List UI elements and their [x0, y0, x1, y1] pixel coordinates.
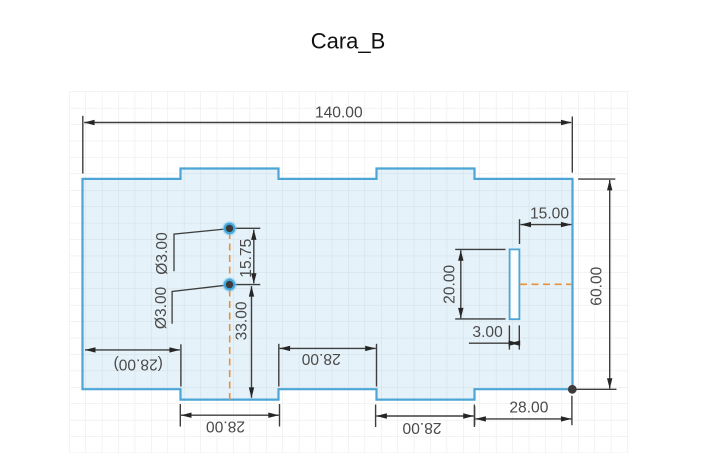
svg-text:28.00: 28.00 [206, 417, 245, 434]
svg-text:20.00: 20.00 [441, 264, 458, 303]
svg-text:3.00: 3.00 [472, 324, 503, 341]
svg-text:33.00: 33.00 [233, 301, 250, 340]
svg-text:28.00: 28.00 [509, 399, 548, 416]
svg-text:60.00: 60.00 [588, 266, 605, 305]
svg-text:140.00: 140.00 [315, 104, 363, 121]
svg-text:15.75: 15.75 [238, 238, 255, 277]
svg-text:28.00: 28.00 [301, 350, 340, 367]
svg-text:28.00: 28.00 [402, 419, 441, 436]
svg-text:(28.00): (28.00) [113, 355, 162, 372]
svg-text:Ø3.00: Ø3.00 [154, 232, 171, 275]
svg-text:15.00: 15.00 [530, 206, 569, 223]
svg-text:Ø3.00: Ø3.00 [153, 286, 170, 329]
svg-text:Cara_B: Cara_B [311, 28, 386, 53]
